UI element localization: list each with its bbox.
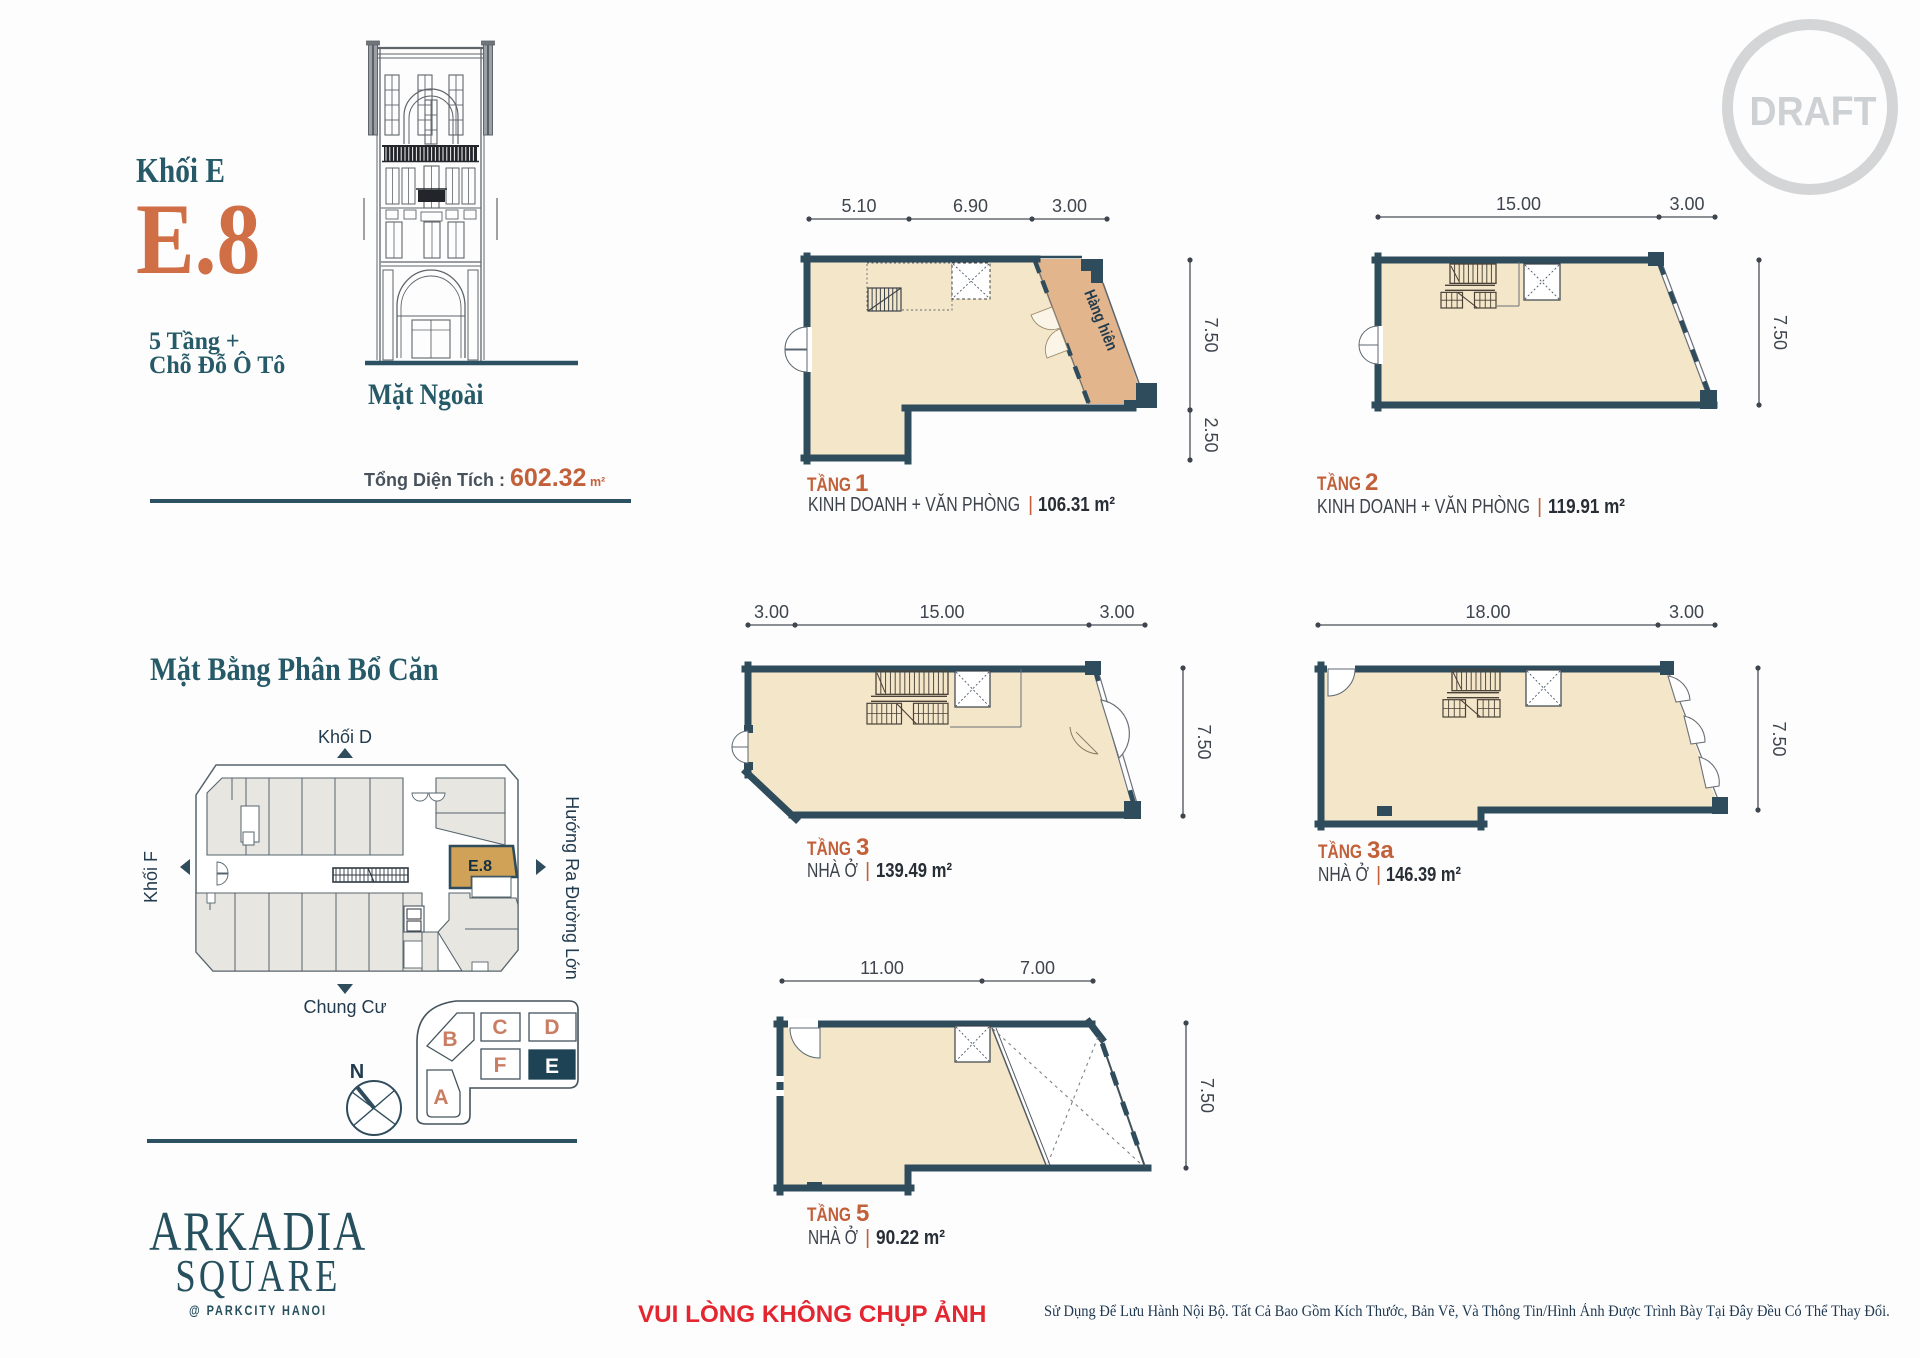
svg-text:11.00: 11.00 [860, 958, 904, 978]
svg-text:7.50: 7.50 [1770, 315, 1790, 350]
svg-text:146.39 m²: 146.39 m² [1386, 864, 1461, 886]
svg-text:NHÀ Ở: NHÀ Ở [807, 858, 858, 882]
svg-text:|: | [865, 1227, 870, 1249]
svg-text:Hướng Ra Đường Lớn: Hướng Ra Đường Lớn [562, 796, 582, 980]
svg-text:3.00: 3.00 [1669, 602, 1704, 622]
svg-text:18.00: 18.00 [1465, 602, 1510, 622]
svg-text:Khối D: Khối D [318, 727, 372, 747]
svg-text:TẦNG: TẦNG [1318, 841, 1362, 863]
svg-text:2.50: 2.50 [1201, 417, 1221, 452]
svg-text:3.00: 3.00 [1052, 196, 1087, 216]
svg-text:A: A [433, 1086, 448, 1109]
svg-text:TẦNG: TẦNG [807, 1204, 851, 1226]
svg-text:B: B [442, 1028, 457, 1051]
svg-text:7.00: 7.00 [1020, 958, 1055, 978]
svg-text:N: N [350, 1061, 364, 1083]
svg-text:F: F [494, 1054, 507, 1077]
svg-text:7.50: 7.50 [1769, 721, 1789, 756]
svg-text:139.49 m²: 139.49 m² [876, 860, 952, 882]
svg-text:D: D [544, 1016, 559, 1039]
svg-text:KINH DOANH + VĂN PHÒNG: KINH DOANH + VĂN PHÒNG [1317, 495, 1530, 518]
svg-text:E: E [545, 1055, 559, 1078]
svg-text:E.8: E.8 [468, 858, 492, 875]
svg-text:7.50: 7.50 [1194, 724, 1214, 759]
svg-text:|: | [1028, 494, 1033, 516]
svg-text:TẦNG: TẦNG [807, 474, 851, 496]
svg-text:TẦNG: TẦNG [807, 838, 851, 860]
svg-text:6.90: 6.90 [953, 196, 988, 216]
svg-text:Chung Cư: Chung Cư [303, 997, 386, 1017]
svg-text:DRAFT: DRAFT [1750, 88, 1877, 134]
svg-text:7.50: 7.50 [1201, 317, 1221, 352]
svg-text:106.31 m²: 106.31 m² [1038, 494, 1115, 516]
svg-text:|: | [1537, 496, 1542, 518]
svg-text:3: 3 [856, 834, 869, 861]
svg-text:3.00: 3.00 [754, 602, 789, 622]
svg-text:NHÀ Ở: NHÀ Ở [808, 1225, 858, 1249]
svg-text:7.50: 7.50 [1197, 1078, 1217, 1113]
svg-text:TẦNG: TẦNG [1317, 473, 1361, 495]
svg-text:|: | [865, 860, 870, 882]
svg-text:KINH DOANH + VĂN PHÒNG: KINH DOANH + VĂN PHÒNG [808, 493, 1020, 516]
svg-text:2: 2 [1365, 469, 1378, 496]
svg-text:NHÀ Ở: NHÀ Ở [1318, 862, 1369, 886]
svg-text:|: | [1376, 864, 1381, 886]
svg-text:15.00: 15.00 [919, 602, 964, 622]
svg-text:Khối F: Khối F [141, 851, 161, 903]
svg-text:90.22 m²: 90.22 m² [876, 1227, 945, 1249]
svg-text:3a: 3a [1367, 837, 1394, 864]
svg-text:5.10: 5.10 [841, 196, 876, 216]
svg-text:15.00: 15.00 [1496, 194, 1541, 214]
svg-text:3.00: 3.00 [1669, 194, 1704, 214]
svg-text:1: 1 [855, 470, 868, 497]
svg-text:119.91 m²: 119.91 m² [1548, 496, 1625, 518]
svg-text:C: C [492, 1016, 507, 1039]
svg-text:3.00: 3.00 [1099, 602, 1134, 622]
svg-text:5: 5 [856, 1200, 869, 1227]
